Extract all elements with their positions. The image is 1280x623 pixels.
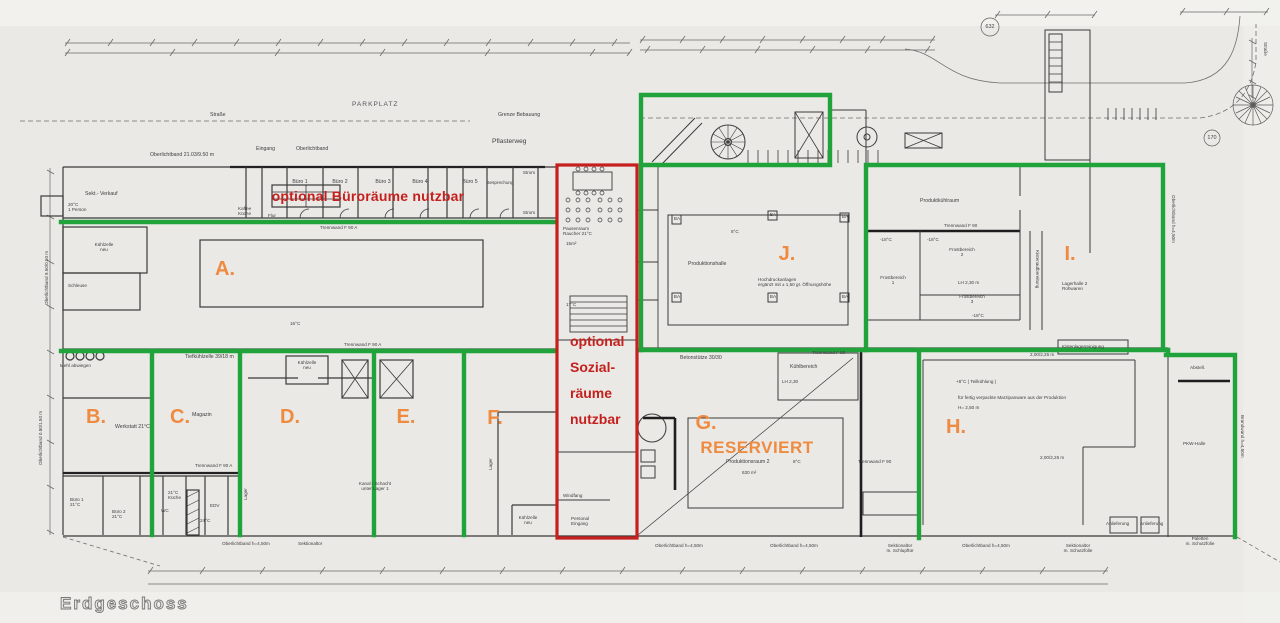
room-label-kanal-schacht: Kanal / Schacht unter Lager 1 (359, 481, 391, 492)
margin-label-oberlichtband-left1: Oberlichtband 9.50/0.50 m (44, 251, 49, 305)
room-label-edv: EDV (210, 503, 219, 508)
room-label-lh230-i: LH 2,30 m (958, 280, 979, 285)
social-note-line-3: räume (570, 385, 612, 402)
column-label-ba-3: BA (842, 214, 848, 219)
note-oberlichtband-4: Oberlichtband h=4,50m (962, 543, 1010, 548)
room-label-flur: Flur (268, 213, 276, 218)
compass-rose (981, 18, 1273, 146)
zone-label-a: A. (215, 258, 235, 281)
room-label-buero3: Büro 3 (375, 179, 390, 185)
note-anlieferung-1: Anlieferung (1106, 521, 1129, 526)
room-label-pausenraum: Pausenraum Raucher 21°C (563, 226, 592, 237)
note-brandwand: Brandwand h=4,50m (1240, 415, 1245, 458)
zone-label-c: C. (170, 406, 190, 429)
room-label-kuehlzelle-d: Kühlzelle neu (298, 360, 317, 371)
room-label-buero5: Büro 5 (462, 179, 477, 185)
zone-j-interior (668, 211, 849, 325)
room-label-kuehlbereich: Kühlbereich (790, 364, 817, 370)
margin-label-oberlichtband-left2: Oberlichtband 0.80/1.50 m (38, 411, 43, 465)
room-label-produktionsraum2: Produktionsraum 2 (726, 459, 770, 465)
room-label-verpackte-ware: für fertig verpackte Marzipanware aus de… (958, 395, 1066, 400)
zone-label-j: J. (779, 243, 796, 266)
wall-label-trennwand-g1: Trennwand F 90 (812, 350, 845, 355)
room-label-m18-2: -18°C (927, 237, 939, 242)
wall-label-trennwand-i: Trennwand F 90 (944, 223, 977, 228)
room-label-h250: H= 2,50 m (958, 405, 979, 410)
room-label-frostbereich2: Frostbereich 2 (949, 247, 975, 258)
zone-label-i: I. (1064, 243, 1075, 266)
room-label-buero2-eg: Büro 2 21°C (112, 509, 126, 520)
room-label-8c-j: 8°C (731, 229, 739, 234)
room-label-buero4: Büro 4 (412, 179, 427, 185)
site-boundary-lines (20, 16, 1280, 566)
wall-label-trennwand-g2: Trennwand F 90 (858, 459, 891, 464)
zone-label-b: B. (86, 406, 106, 429)
room-label-m18-3: -18°C (972, 313, 984, 318)
floorplan-linework (0, 0, 1280, 623)
room-label-15qm: 15m² (566, 241, 576, 246)
room-label-frostbereich1: Frostbereich 1 (880, 275, 906, 286)
site-label-strasse-left: Straße (210, 112, 226, 118)
room-label-sekt-verkauf: Sekt.- Verkauf (85, 191, 118, 197)
zone-label-f: F. (487, 407, 503, 430)
stair-plant-area (652, 30, 1156, 253)
note-schutzfolie-tor: Sektionaltor m. Schutzfolie (1064, 543, 1093, 554)
room-label-8c-g: 8°C (793, 459, 801, 464)
column-label-ba-1: BA (674, 216, 680, 221)
office-note: optional Büroräume nutzbar (272, 188, 465, 205)
room-label-oberlichtband-main: Oberlichtband 21.03/9.50 m (150, 152, 214, 158)
note-anlieferung-2: Anlieferung (1140, 521, 1163, 526)
room-label-oberlichtband-small: Oberlichtband (296, 146, 328, 152)
social-note-line-4: nutzbar (570, 411, 621, 428)
room-label-630qm: 630 m² (742, 470, 756, 475)
floorplan-canvas: A. B. C. D. E. F. G. H. I. J. RESERVIERT… (0, 0, 1280, 623)
survey-number-632: 632 (985, 24, 994, 30)
room-label-hochdruckanlagen: Hochdruckanlagen ergänzt mit ± 1,50 gr. … (758, 277, 831, 288)
room-label-lagerhalle2: Lagerhalle 2 Rohwaren (1062, 281, 1087, 292)
wall-label-trennwand-row: Trennwand F 90 A (344, 342, 381, 347)
room-label-lager-c: Lager (243, 488, 248, 500)
site-label-pflasterweg: Pflasterweg (492, 138, 526, 146)
room-label-eingang: Eingang (256, 146, 275, 152)
margin-label-strasse-right: Straße (1263, 42, 1268, 56)
room-label-windfang: Windfang (563, 493, 582, 498)
room-label-teilkuehlung: +8°C ( Teilkühlung ) (956, 379, 996, 384)
room-label-produktkuehlraum: Produktkühlraum (920, 198, 959, 204)
room-label-kaffee-kueche: Kaffee Küche (238, 206, 251, 217)
room-label-kistenlagerreinigung: Kistenlagerreinigung (1062, 344, 1104, 349)
room-label-kuehlzelle-a: Kühlzelle neu (95, 242, 114, 253)
room-label-wc: WC (161, 508, 169, 513)
room-label-kistenaufbereitung: Kistenaufbereitung (1035, 250, 1040, 288)
room-label-buero1-eg: Büro 1 21°C (70, 497, 84, 508)
room-label-personal-eingang: Personal Eingang (571, 516, 589, 527)
room-label-magazin: Magazin (192, 412, 212, 418)
note-oberlichtband-3: Oberlichtband h=4,50m (770, 543, 818, 548)
room-label-tiefkuehlzelle: Tiefkühlzelle 39/18 m (185, 354, 234, 360)
room-label-strom-bottom: Strom (523, 210, 535, 215)
column-label-ba-6: BA (842, 294, 848, 299)
note-oberlichtband-1: Oberlichtband h=4,50m (222, 541, 270, 546)
room-label-abstell: Abstell. (1190, 365, 1205, 370)
room-label-person20: 20°C 1 Person (68, 202, 86, 213)
margin-label-oberlichtband-right: Oberlichtband h=4,50m (1171, 195, 1176, 243)
room-label-16c: 16°C (290, 321, 300, 326)
room-label-mehl-abwiegen: Mehl abwiegen (60, 363, 91, 368)
note-oberlichtband-2: Oberlichtband h=4,50m (655, 543, 703, 548)
room-label-24c: 24°C (200, 518, 210, 523)
room-label-17c: 17°C (566, 302, 576, 307)
column-label-ba-5: BA (770, 294, 776, 299)
room-label-m18-1: -18°C (880, 237, 892, 242)
room-label-strom-top: Strom (523, 170, 535, 175)
room-label-betonstuetze: Betonstütze 30/30 (680, 355, 722, 361)
zone-label-g: G. (695, 412, 716, 435)
social-note-line-2: Sozial- (570, 359, 615, 376)
social-note-line-1: optional (570, 333, 624, 350)
reserved-label: RESERVIERT (700, 438, 813, 458)
wall-label-trennwand-top: Trennwand F 90 A (320, 225, 357, 230)
site-label-parkplatz: PARKPLATZ (352, 101, 399, 109)
zone-label-d: D. (280, 406, 300, 429)
room-label-buero1: Büro 1 (292, 179, 307, 185)
site-label-grenze: Grenze Bebauung (498, 112, 540, 118)
note-sektionaltor: Sektionaltor (298, 541, 322, 546)
room-label-kuehlzelle-f: Kühlzelle neu (519, 515, 538, 526)
room-label-besprechung: Besprechung (486, 180, 513, 185)
room-label-pkw-halle: PKW-Halle (1183, 441, 1205, 446)
room-label-werkstatt: Werkstatt 21°C (115, 424, 150, 430)
column-label-ba-2: BA (770, 212, 776, 217)
room-label-produktionshalle: Produktionshalle (688, 261, 726, 267)
room-label-buero2: Büro 2 (332, 179, 347, 185)
note-paletten: Paletten m. Schutzfolie (1186, 536, 1215, 547)
zone-boundaries-green (61, 95, 1235, 538)
room-label-lh230: LH 2,30 (782, 379, 798, 384)
note-schlupftuer: Sektionaltor m. Schlupftür (886, 543, 913, 554)
room-label-schleuse: Schleuse (68, 283, 87, 288)
room-label-kueche: 21°C Küche (168, 490, 181, 501)
zone-label-e: E. (397, 406, 416, 429)
zone-label-h: H. (946, 416, 966, 439)
room-label-lager-f: Lager (488, 458, 493, 470)
wall-label-trennwand-b: Trennwand F 90 A (195, 463, 232, 468)
dim-label-200-226-mid: 2,00/2,26 m (1040, 455, 1064, 460)
dim-label-200-226-top: 2,00/2,26 m (1030, 352, 1054, 357)
optional-area-outline-red (557, 165, 637, 538)
column-label-ba-4: BA (674, 294, 680, 299)
survey-number-170: 170 (1207, 135, 1216, 141)
room-label-frostbereich3: Frostbereich 3 (959, 294, 985, 305)
zone-i-interior (866, 167, 1128, 354)
floor-title: Erdgeschoss (60, 594, 189, 614)
